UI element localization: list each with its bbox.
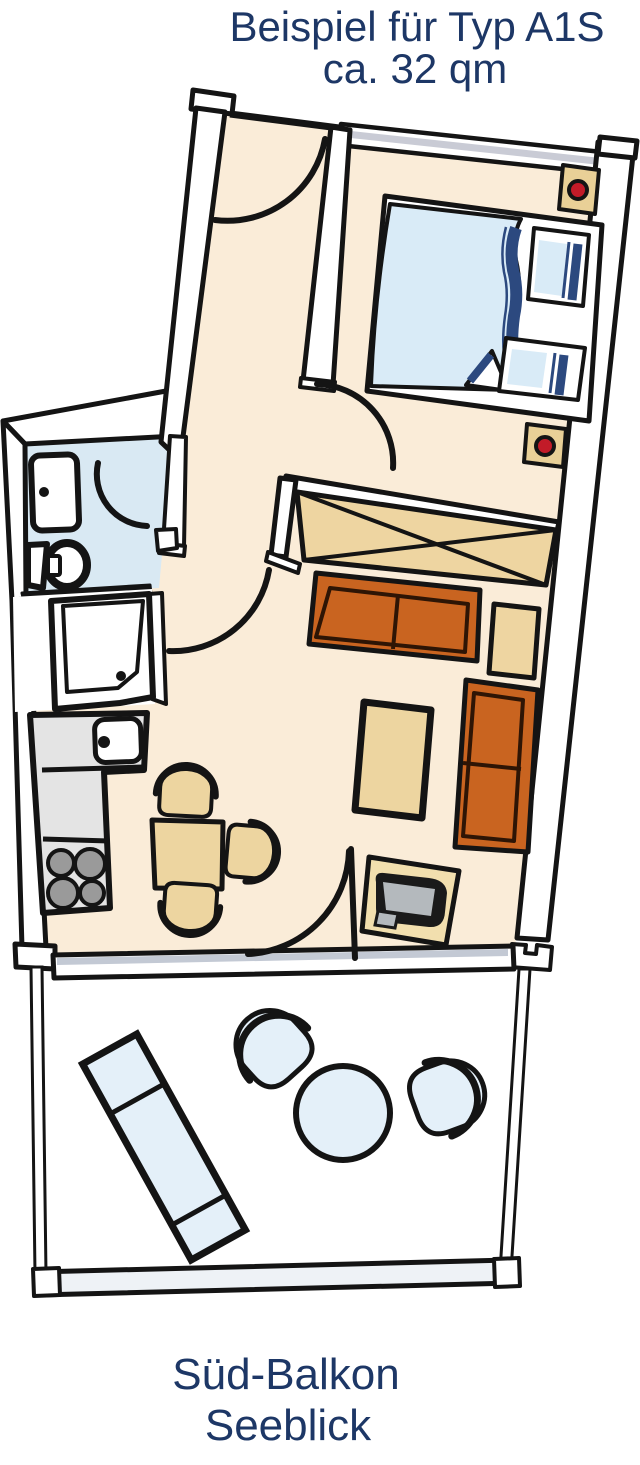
svg-text:ca. 32 qm: ca. 32 qm <box>323 45 507 92</box>
svg-text:Beispiel für Typ A1S: Beispiel für Typ A1S <box>229 3 604 50</box>
svg-text:Seeblick: Seeblick <box>205 1401 372 1450</box>
svg-text:Süd-Balkon: Süd-Balkon <box>172 1350 399 1399</box>
